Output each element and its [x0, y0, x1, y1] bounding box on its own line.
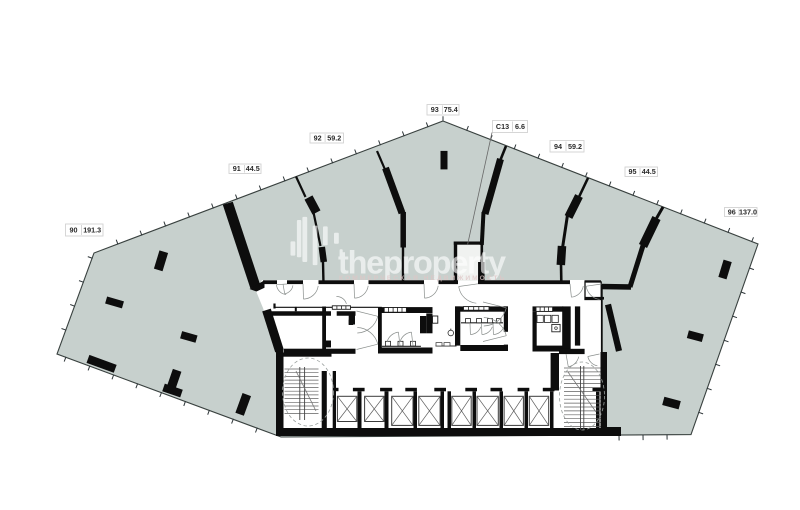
- svg-text:C13: C13: [496, 122, 509, 131]
- svg-text:КОММЕРЧЕСКАЯ НЕДВИЖИМОСТЬ: КОММЕРЧЕСКАЯ НЕДВИЖИМОСТЬ: [339, 275, 506, 282]
- svg-text:44.5: 44.5: [642, 167, 656, 176]
- svg-text:44.5: 44.5: [246, 164, 260, 173]
- svg-text:137.0: 137.0: [739, 208, 757, 217]
- svg-text:6.6: 6.6: [515, 122, 525, 131]
- svg-text:95: 95: [629, 167, 637, 176]
- svg-text:75.4: 75.4: [444, 105, 458, 114]
- svg-text:90: 90: [70, 226, 78, 235]
- svg-text:59.2: 59.2: [327, 134, 341, 143]
- svg-text:93: 93: [431, 105, 439, 114]
- svg-text:92: 92: [314, 134, 322, 143]
- svg-text:191.3: 191.3: [83, 226, 101, 235]
- svg-text:96: 96: [728, 208, 736, 217]
- svg-text:91: 91: [233, 164, 241, 173]
- svg-text:59.2: 59.2: [568, 142, 582, 151]
- svg-text:94: 94: [554, 142, 562, 151]
